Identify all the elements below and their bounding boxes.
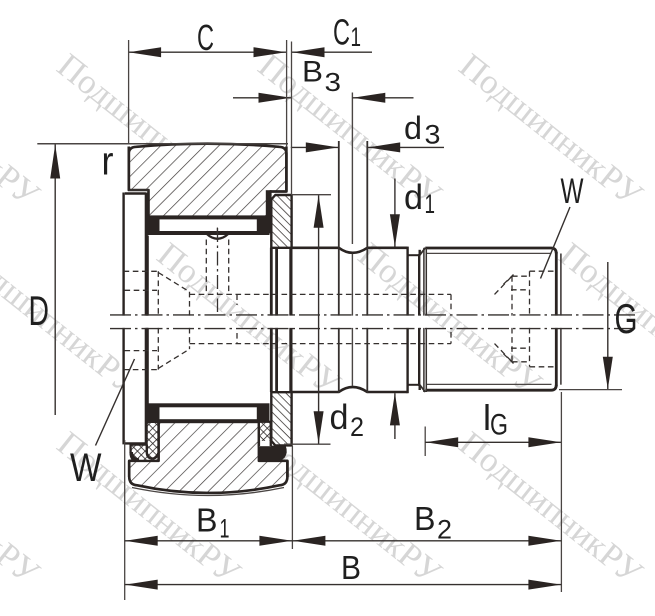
svg-text:3: 3 [425, 120, 441, 150]
svg-text:1: 1 [351, 22, 362, 52]
svg-text:d: d [404, 110, 422, 146]
svg-text:1: 1 [425, 189, 436, 219]
svg-text:G: G [615, 295, 638, 342]
svg-text:B: B [302, 56, 323, 89]
svg-text:W: W [70, 446, 102, 490]
svg-text:r: r [102, 140, 114, 184]
svg-text:1: 1 [220, 514, 230, 544]
svg-text:C: C [197, 17, 214, 58]
svg-text:2: 2 [437, 514, 452, 544]
svg-text:d: d [404, 178, 423, 217]
svg-text:D: D [29, 287, 50, 334]
svg-text:2: 2 [350, 412, 364, 442]
svg-text:G: G [490, 409, 508, 442]
svg-text:W: W [561, 172, 584, 211]
svg-text:3: 3 [325, 67, 342, 97]
svg-text:d: d [330, 398, 349, 437]
svg-text:C: C [333, 12, 350, 53]
svg-text:B: B [414, 500, 436, 537]
svg-text:B: B [341, 549, 361, 586]
svg-text:B: B [196, 502, 218, 539]
